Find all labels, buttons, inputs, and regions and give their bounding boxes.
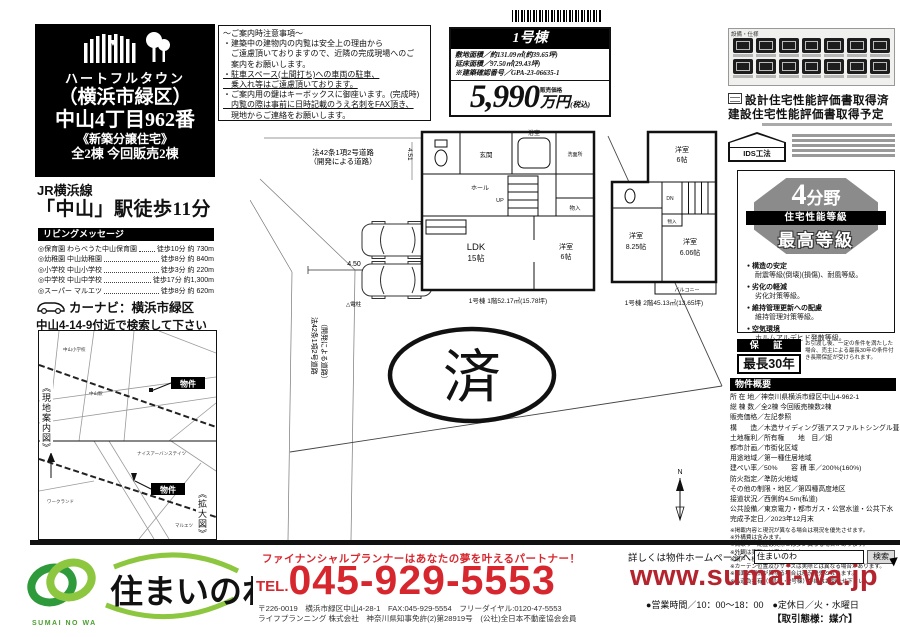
equipment-icon <box>733 38 753 57</box>
svg-text:6帖: 6帖 <box>677 155 688 164</box>
list-item: ◎小学校 中山小学校徒歩3分 約 220m <box>38 264 214 275</box>
svg-text:N: N <box>677 469 682 476</box>
equipment-icon <box>802 59 822 78</box>
site-and-floor-plans: 4.50 4.51 法42条1項2号道路 （開発による道路） 法42条1項2号道… <box>250 122 725 542</box>
equipment-icon <box>847 38 867 57</box>
equipment-icon <box>733 59 753 78</box>
grade-band: 住宅性能等級 <box>746 211 886 225</box>
ids-label: IDS工法 <box>730 147 784 160</box>
price-amount: 5,990 <box>470 82 539 112</box>
gate-trees-logo <box>70 28 180 68</box>
business-hours: ●営業時間／10：00～18：00 ●定休日／火・水曜日 <box>646 598 859 611</box>
room-2f-west606: 洋室 <box>683 237 697 246</box>
svg-text:6.06帖: 6.06帖 <box>680 248 701 257</box>
warranty-block: 保 証 最長30年 お引渡し後、一定の条件を満たした場合、売主による最長30年の… <box>737 339 895 374</box>
property-tag-upper: 物件 <box>149 377 205 392</box>
map-zoom-label: 《拡大図》 <box>196 489 209 539</box>
map-side-label: 《現地案内図》 <box>40 383 53 453</box>
room-closet: 物入 <box>569 204 581 212</box>
grade-bullets: 構造の安定 耐震等級(倒壊)(損傷)、耐風等級。 劣化の軽減 劣化対策等級。 維… <box>738 256 894 343</box>
living-message-header: リビングメッセージ <box>38 228 214 241</box>
room-wash: 洗面所 <box>567 151 582 158</box>
svg-text:（開発による道路）: （開発による道路） <box>320 320 329 383</box>
carnavi-line1: カーナビ：横浜市緑区 <box>69 297 194 316</box>
title-units: 全2棟 今回販売2棟 <box>35 146 215 161</box>
unit-name: 1号棟 <box>451 29 609 49</box>
room-2f-west6: 洋室 <box>675 145 689 154</box>
list-item: ◎保育園 わらべうた中山保育園徒歩10分 約 730m <box>38 243 214 254</box>
warranty-header: 保 証 <box>737 339 801 352</box>
tel-label: TEL. <box>256 578 289 602</box>
phone-number: 045-929-5553 <box>289 558 556 602</box>
title-block: ハートフルタウン （横浜市緑区） 中山4丁目962番 《新築分譲住宅》 全2棟 … <box>35 24 215 177</box>
website-url: www.sumai-wa.jp <box>630 560 878 593</box>
transaction-type: 【取引態様：媒介】 <box>772 611 858 625</box>
stairs-up: UP <box>496 198 504 204</box>
dim-450-label: 4.50 <box>347 261 361 268</box>
svg-text:15帖: 15帖 <box>468 253 485 263</box>
carnavi-block: カーナビ：横浜市緑区 中山4-14-9付近で検索して下さい <box>36 297 218 333</box>
warranty-term: 最長30年 <box>737 354 801 374</box>
svg-text:物件: 物件 <box>180 379 196 389</box>
caption-1f: 1号棟 1階52.17㎡(15.78坪) <box>469 296 547 305</box>
cursor-icon <box>889 555 900 567</box>
room-bath: 浴室 <box>528 129 540 137</box>
equipment-grid <box>733 38 890 78</box>
overview-header: 物件概要 <box>730 378 896 391</box>
svg-text:（開発による道路）: （開発による道路） <box>309 156 376 166</box>
caption-2f: 1号棟 2階45.13㎡(13.65坪) <box>625 298 703 307</box>
svg-text:物件: 物件 <box>160 485 176 495</box>
svg-text:8.25帖: 8.25帖 <box>626 242 647 251</box>
logo-swoosh-top <box>114 555 238 571</box>
performance-grade-box: 4分野 住宅性能等級 最高等級 構造の安定 耐震等級(倒壊)(損傷)、耐風等級。… <box>737 170 895 333</box>
map-label-super: マルエツ <box>175 523 193 529</box>
price-box-unit1: 1号棟 敷地面積／約131.09㎡(約39.65坪) 延床面積／97.50㎡(2… <box>449 27 611 117</box>
barcode <box>512 10 602 22</box>
equipment-specs-box: 設備・仕様 <box>728 28 895 86</box>
building-confirmation: ※建築確認番号／GPA-23-06635-1 <box>455 69 605 78</box>
equipment-icon <box>870 59 890 78</box>
certificate-stamp-icon <box>728 93 742 104</box>
price-unit: 万円 <box>540 95 570 111</box>
map-label-school: 中山小学校 <box>63 346 86 353</box>
overview-lines: 所 在 地／神奈川県横浜市緑区中山4-962-1 総 棟 数／全2棟 今回販売棟… <box>730 393 896 526</box>
road-label-left: 法42条1項2号道路 <box>310 317 319 375</box>
room-genkan: 玄関 <box>480 150 493 159</box>
svg-text:済: 済 <box>443 345 501 410</box>
area-map: 中山小学校 中山駅 ナイスアーバンステイツ ワークランド マルエツ 物件 物件 … <box>38 330 217 540</box>
title-type: 《新築分譲住宅》 <box>35 132 215 146</box>
equipment-icon <box>756 38 776 57</box>
map-label-mansion: ナイスアーバンステイツ <box>137 451 187 457</box>
floor-plan-1f: 玄関 浴室 洗面所 ホール UP 物入 LDK 15帖 洋室 6帖 1号棟 1階… <box>422 129 594 305</box>
equipment-icon <box>824 38 844 57</box>
floor-plan-2f: 洋室 6帖 DN 物入 洋室 8.25帖 洋室 6.06帖 バルコニー 1号棟 … <box>612 132 716 307</box>
equipment-icon <box>779 59 799 78</box>
room-west1: 洋室 <box>559 242 573 251</box>
living-message-list: ◎保育園 わらべうた中山保育園徒歩10分 約 730m ◎幼稚園 中山幼稚園徒歩… <box>38 243 214 296</box>
address-line2: ライフプランニング 株式会社 神奈川県知事免許(2)第28919号 (公社)全日… <box>258 613 577 624</box>
room-2f-west825: 洋室 <box>629 231 643 240</box>
utility-pole-label: △電柱 <box>346 300 362 308</box>
car-icon <box>36 299 66 314</box>
floor-area: 延床面積／97.50㎡(29.43坪) <box>455 60 605 69</box>
room-hall: ホール <box>471 185 489 192</box>
room-2f-closet: 物入 <box>668 218 677 225</box>
ids-method-badge: IDS工法 <box>728 132 786 162</box>
room-ldk: LDK <box>467 242 486 253</box>
grade-fields: 4分野 <box>746 179 886 211</box>
map-label-work: ワークランド <box>47 499 74 505</box>
equipment-icon <box>847 59 867 78</box>
dim-451-label: 4.51 <box>406 148 413 161</box>
list-item: ◎スーパー マルエツ徒歩8分 約 620m <box>38 285 214 296</box>
stairs-dn: DN <box>666 196 674 202</box>
list-item: ◎幼稚園 中山幼稚園徒歩8分 約 840m <box>38 254 214 265</box>
list-item: ◎中学校 中山中学校徒歩17分 約1,300m <box>38 275 214 286</box>
viewing-notice: ～ご案内時注意事項～ ・建築中の建物内の内覧は安全上の理由から ご遠慮頂いており… <box>218 25 431 121</box>
equipment-icon <box>802 38 822 57</box>
company-logo: 住まいのわ SUMAI NO WA <box>18 549 253 633</box>
price-tax: (税込) <box>570 100 590 109</box>
map-label-station: 中山駅 <box>89 390 103 397</box>
price-label: 販売価格 <box>540 86 590 94</box>
footer-divider <box>30 540 900 545</box>
road-label-top: 法42条1項2号道路 <box>312 147 374 157</box>
price: 5,990 販売価格 万円(税込) <box>451 81 609 115</box>
brand-name: ハートフルタウン <box>35 68 215 87</box>
logo-text: 住まいのわ <box>110 573 253 610</box>
ids-fine-print <box>792 134 895 159</box>
svg-text:6帖: 6帖 <box>561 252 572 261</box>
grade-rank: 最高等級 <box>746 226 886 251</box>
sold-stamp: 済 <box>390 329 554 421</box>
construction-performance-line: 建設住宅性能評価書取得予定 <box>728 106 884 122</box>
fine-print-bar <box>762 123 892 126</box>
flyer-sheet: ハートフルタウン （横浜市緑区） 中山4丁目962番 《新築分譲住宅》 全2棟 … <box>0 0 900 637</box>
station-access: 「中山」駅徒歩11分 <box>36 194 211 221</box>
logo-subtext: SUMAI NO WA <box>32 620 97 627</box>
balcony-label: バルコニー <box>675 288 700 294</box>
title-address: 中山4丁目962番 <box>35 109 215 132</box>
phone-block: TEL. 045-929-5553 <box>256 558 556 602</box>
equipment-icon <box>756 59 776 78</box>
equipment-icon <box>779 38 799 57</box>
title-area: （横浜市緑区） <box>35 87 215 109</box>
property-tag-lower: 物件 <box>131 473 185 495</box>
equipment-icon <box>870 38 890 57</box>
north-compass: N <box>676 469 684 520</box>
equipment-icon <box>824 59 844 78</box>
equipment-header: 設備・仕様 <box>731 30 759 38</box>
land-area: 敷地面積／約131.09㎡(約39.65坪) <box>455 51 605 60</box>
warranty-note: お引渡し後、一定の条件を満たした場合、売主による最長30年の条件付き長期保証が受… <box>805 339 895 374</box>
